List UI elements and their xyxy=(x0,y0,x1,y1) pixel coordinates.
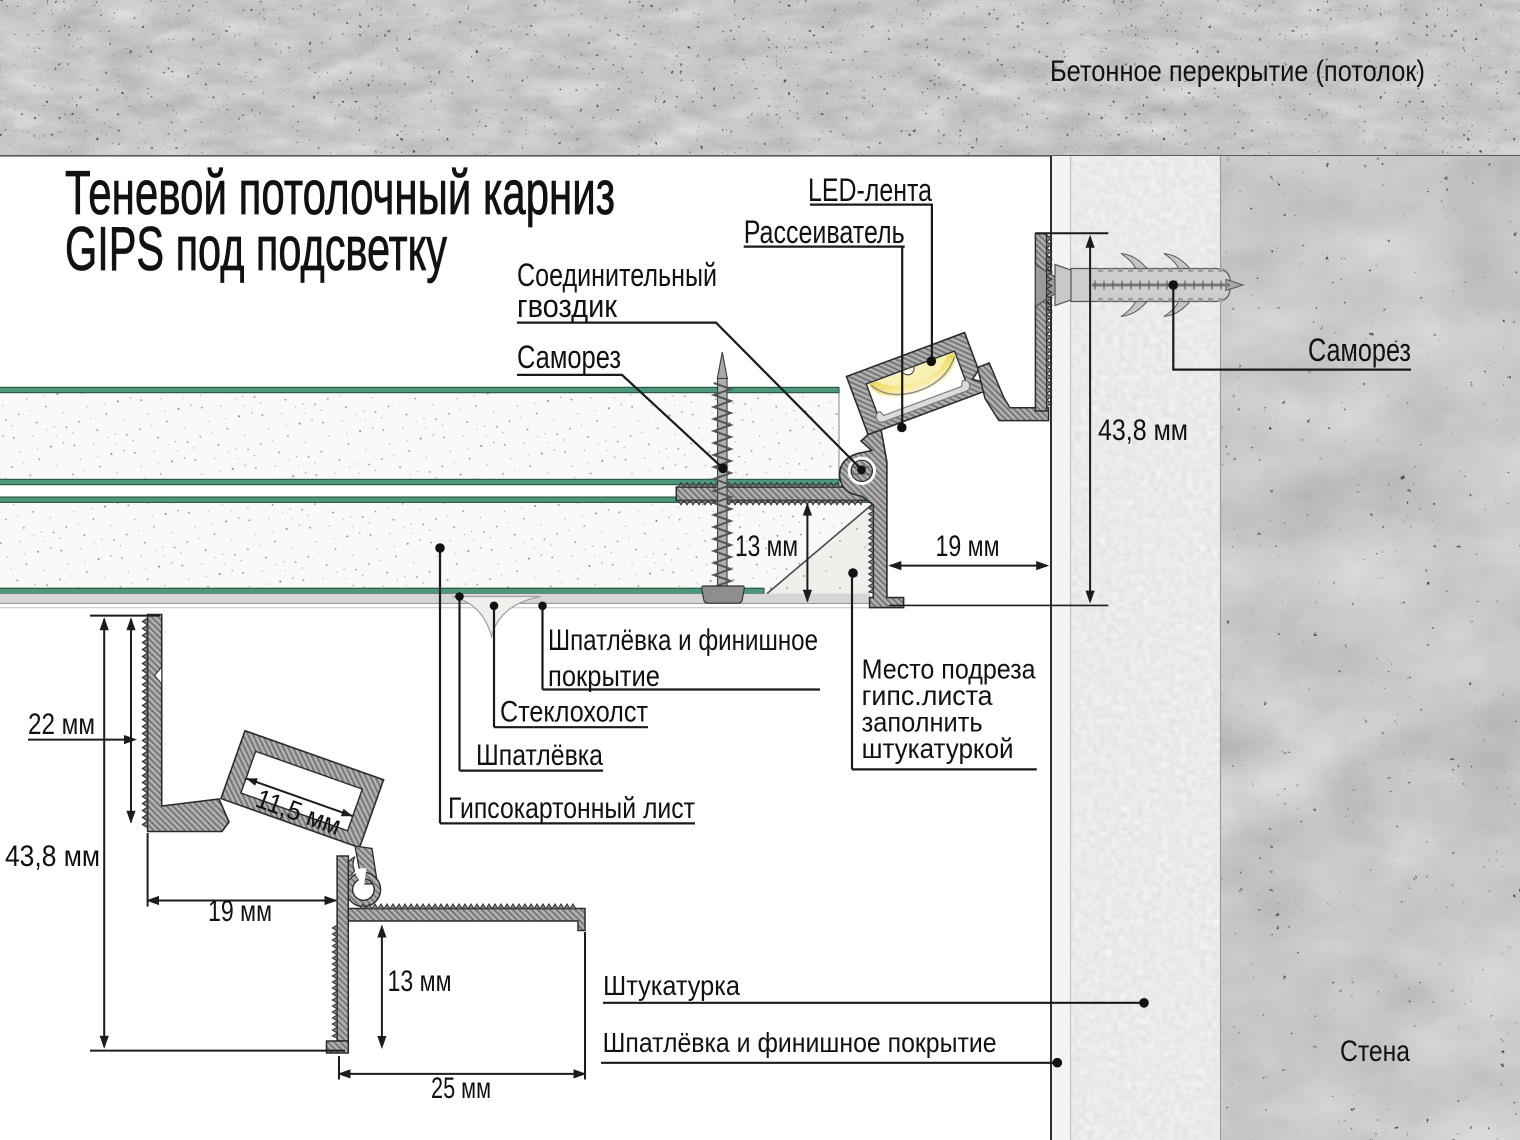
svg-text:13 мм: 13 мм xyxy=(735,530,798,563)
svg-text:Шпатлёвка: Шпатлёвка xyxy=(476,739,603,772)
svg-text:22 мм: 22 мм xyxy=(28,708,95,741)
svg-text:25 мм: 25 мм xyxy=(431,1072,491,1105)
svg-text:Саморез: Саморез xyxy=(517,339,621,375)
svg-text:Рассеиватель: Рассеиватель xyxy=(744,214,905,250)
svg-text:GIPS под подсветку: GIPS под подсветку xyxy=(65,215,447,284)
svg-text:Стеклохолст: Стеклохолст xyxy=(500,696,648,729)
svg-text:LED-лента: LED-лента xyxy=(808,172,932,208)
svg-text:Штукатурка: Штукатурка xyxy=(603,970,740,1001)
svg-text:Бетонное перекрытие (потолок): Бетонное перекрытие (потолок) xyxy=(1050,55,1425,88)
svg-text:штукатуркой: штукатуркой xyxy=(862,733,1014,764)
svg-text:Саморез: Саморез xyxy=(1308,332,1411,368)
svg-text:Шпатлёвка и финишное: Шпатлёвка и финишное xyxy=(548,624,818,657)
svg-text:43,8 мм: 43,8 мм xyxy=(1098,414,1188,447)
svg-text:Гипсокартонный лист: Гипсокартонный лист xyxy=(448,792,695,825)
svg-text:43,8 мм: 43,8 мм xyxy=(5,840,100,873)
svg-text:19 мм: 19 мм xyxy=(208,895,272,928)
svg-text:гвоздик: гвоздик xyxy=(517,288,618,324)
svg-text:Шпатлёвка и финишное покрытие: Шпатлёвка и финишное покрытие xyxy=(603,1027,997,1058)
svg-text:19 мм: 19 мм xyxy=(936,530,1000,563)
svg-text:13 мм: 13 мм xyxy=(388,965,452,998)
svg-text:покрытие: покрытие xyxy=(548,660,660,693)
svg-text:Стена: Стена xyxy=(1340,1035,1410,1068)
